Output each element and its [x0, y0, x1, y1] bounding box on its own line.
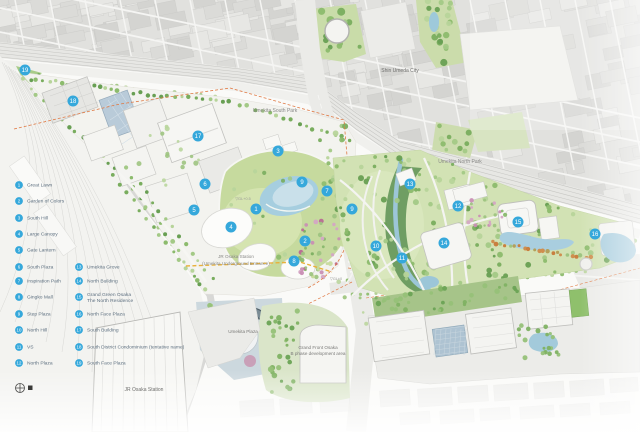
- svg-text:15: 15: [515, 220, 522, 226]
- svg-text:(Umekita Underground Entrance): (Umekita Underground Entrance): [202, 261, 270, 266]
- svg-text:11: 11: [17, 345, 22, 350]
- svg-text:Gingko Mall: Gingko Mall: [27, 295, 53, 301]
- svg-text:Umekita South Park: Umekita South Park: [253, 108, 298, 114]
- svg-text:18: 18: [77, 345, 82, 350]
- svg-text:Step Plaza: Step Plaza: [27, 312, 51, 318]
- svg-text:South Face Plaza: South Face Plaza: [87, 361, 126, 367]
- svg-text:Great Lawn: Great Lawn: [27, 183, 53, 189]
- svg-text:Garden of Colors: Garden of Colors: [27, 199, 65, 205]
- svg-text:JR Osaka Station: JR Osaka Station: [125, 387, 164, 393]
- svg-text:16: 16: [77, 312, 82, 317]
- svg-text:13: 13: [77, 265, 82, 270]
- svg-text:12: 12: [455, 204, 462, 210]
- svg-text:14: 14: [77, 279, 82, 284]
- svg-text:19: 19: [22, 68, 29, 74]
- svg-text:Grand Green Osaka: Grand Green Osaka: [87, 292, 131, 298]
- svg-text:North Plaza: North Plaza: [27, 361, 53, 367]
- svg-text:South Plaza: South Plaza: [27, 265, 54, 271]
- svg-text:13: 13: [407, 182, 414, 188]
- svg-text:Umekita Plaza: Umekita Plaza: [228, 329, 258, 334]
- svg-text:VS: VS: [27, 345, 34, 351]
- svg-text:Umekita Grove: Umekita Grove: [87, 265, 120, 271]
- svg-text:17: 17: [195, 134, 202, 140]
- svg-text:Shin Umeda City: Shin Umeda City: [381, 68, 419, 74]
- svg-text:B phase development area: B phase development area: [291, 351, 346, 356]
- svg-text:South Hill: South Hill: [27, 216, 48, 222]
- svg-text:North Face Plaza: North Face Plaza: [87, 312, 125, 318]
- svg-text:South Building: South Building: [87, 328, 119, 334]
- svg-text:South District Condominium (te: South District Condominium (tentative na…: [87, 345, 185, 351]
- svg-text:14: 14: [441, 241, 448, 247]
- svg-text:16: 16: [592, 232, 599, 238]
- svg-text:Grand Front Osaka: Grand Front Osaka: [298, 345, 338, 350]
- svg-text:10: 10: [373, 244, 380, 250]
- svg-text:12: 12: [17, 361, 22, 366]
- svg-text:North Building: North Building: [87, 279, 118, 285]
- svg-text:10: 10: [17, 328, 22, 333]
- svg-text:The North Residence: The North Residence: [87, 298, 133, 304]
- svg-text:▽GL+0.5: ▽GL+0.5: [235, 197, 250, 201]
- svg-text:19: 19: [77, 361, 82, 366]
- svg-text:JR Osaka Station: JR Osaka Station: [218, 254, 254, 259]
- svg-text:18: 18: [70, 99, 77, 105]
- svg-text:15: 15: [77, 295, 82, 300]
- svg-text:▽GL±0: ▽GL±0: [330, 277, 342, 281]
- svg-text:11: 11: [399, 256, 406, 262]
- svg-text:Inspiration Path: Inspiration Path: [27, 279, 61, 285]
- svg-text:Gate Lantern: Gate Lantern: [27, 248, 56, 254]
- svg-text:North Hill: North Hill: [27, 328, 47, 334]
- svg-text:Umekita North Park: Umekita North Park: [438, 159, 482, 165]
- svg-text:17: 17: [77, 328, 82, 333]
- svg-text:Large Canopy: Large Canopy: [27, 232, 58, 238]
